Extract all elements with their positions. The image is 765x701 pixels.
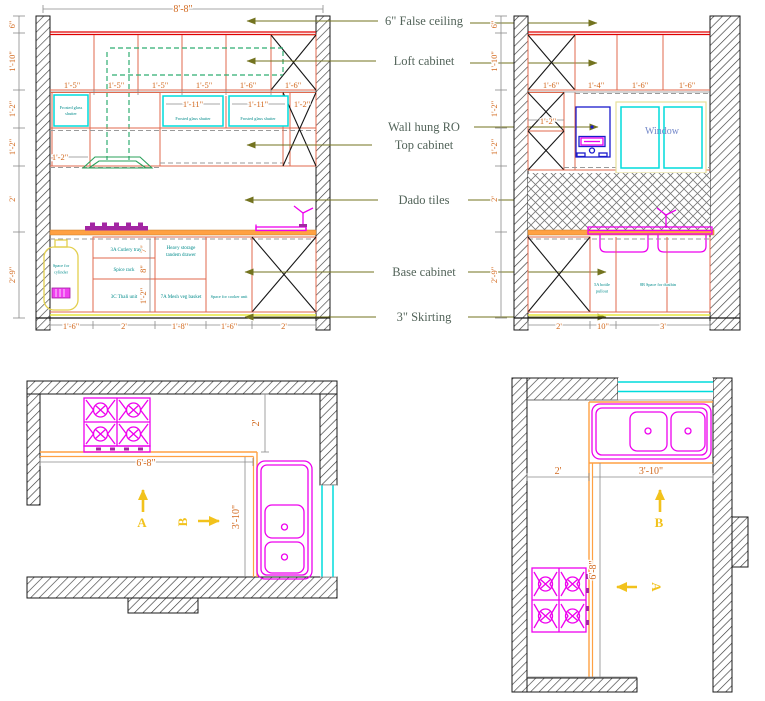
plan-a-dims: 6'-8" 3'-10" 2'	[40, 394, 269, 577]
plan-a-hob	[84, 398, 150, 452]
wall-hung-ro-label: Wall hung RO	[388, 120, 460, 134]
plan-a: 6'-8" 3'-10" 2' A B	[27, 381, 337, 613]
dim: 2'	[251, 419, 262, 426]
dim: 2'	[121, 321, 127, 331]
plan-a-bottom-wall	[27, 577, 337, 598]
dim: 2'	[7, 196, 17, 202]
unit-label: Space for cooker unit	[211, 294, 249, 299]
elev-a-base-cabinets: 7" 8" 1'-2" 3A Cutlery tray Spice rack 3…	[50, 237, 316, 315]
plan-b-bottom-wall	[527, 678, 637, 692]
shutter-label: shutter	[65, 111, 77, 116]
burner-icon	[561, 572, 584, 596]
elev-b-base-cabinets: 5A bottle pullout 8B Space for dustbin	[528, 237, 710, 315]
elev-a-width-dim: 8'-8"	[173, 4, 192, 15]
plan-b-top-wall	[527, 378, 618, 400]
elev-a-left-dims: 6" 1'-10" 1'-2" 1'-2" 2' 2'-9"	[7, 16, 25, 318]
plan-a-sink	[257, 461, 312, 579]
plan-b-sink	[592, 404, 711, 459]
dim: 1'-6"	[221, 321, 237, 331]
dim: 1'-6"	[679, 80, 695, 90]
unit-label: Spice rack	[114, 268, 135, 273]
plan-a-counter-edge	[40, 452, 257, 577]
dim: 8"	[138, 265, 148, 273]
elev-b-dado-tiles	[528, 173, 710, 230]
annotation-labels: 6" False ceiling Loft cabinet Wall hung …	[245, 14, 606, 324]
dim: 1'-6"	[63, 321, 79, 331]
burner-icon	[561, 604, 584, 628]
section-a-label: A	[137, 515, 147, 530]
elev-b-bottom-dims: 2' 10" 3'	[528, 321, 710, 331]
elev-a-loft-cabinets: 1'-5" 1'-5" 1'-5" 1'-5" 1'-6" 1'-6"	[50, 35, 316, 95]
unit-label: 8B Space for dustbin	[640, 282, 677, 287]
elev-a-right-wall	[316, 16, 330, 330]
shutter-label: Frosted glass shutter	[240, 116, 276, 121]
dim: 1'-6"	[285, 80, 301, 90]
elev-b-wall-hung-ro-unit	[576, 107, 610, 157]
dim: 2'	[555, 466, 562, 477]
dim: 6"	[489, 21, 499, 29]
plan-b-left-wall	[512, 378, 527, 692]
plan-a-bottom-wall-step	[128, 598, 198, 613]
plan-a-window	[320, 485, 337, 577]
dim: 1'-4"	[588, 80, 604, 90]
plan-b-right-wall	[713, 378, 732, 692]
elev-b-left-dims: 6" 1'-10" 1'-2" 1'-2" 2' 2'-9"	[489, 16, 507, 318]
dim: 2'	[556, 321, 562, 331]
unit-label: 3A Cutlery tray	[110, 248, 142, 253]
dim: 6'-8"	[588, 560, 599, 579]
dado-tiles-label: Dado tiles	[398, 193, 449, 207]
plan-a-top-wall	[27, 381, 337, 394]
elev-a-sink-and-faucet	[256, 206, 313, 231]
unit-label: pullout	[596, 289, 609, 294]
elevation-a: 8'-8" 6" 1'-10" 1'-2" 1'-2" 2' 2'-9"	[7, 4, 330, 331]
dim: 1'-11"	[183, 99, 203, 109]
skirting-label: 3" Skirting	[397, 310, 453, 324]
dim: 1'-11"	[248, 99, 268, 109]
dim: 2'	[489, 196, 499, 202]
shutter-label: Frosted glass	[60, 105, 83, 110]
elev-a-bottom-dims: 1'-6" 2' 1'-8" 1'-6" 2'	[50, 321, 316, 331]
unit-label: 3C Thali unit	[111, 295, 138, 300]
burner-icon	[86, 424, 115, 444]
dim: 1'-6"	[240, 80, 256, 90]
dim: 1'-2"	[489, 101, 499, 117]
dim: 3'-10"	[231, 505, 242, 529]
dim: 1'-5"	[108, 80, 124, 90]
elev-a-false-ceiling	[50, 32, 316, 35]
dim: 1'-2"	[7, 139, 17, 155]
kitchen-drawing: 8'-8" 6" 1'-10" 1'-2" 1'-2" 2' 2'-9"	[0, 0, 765, 701]
top-cabinet-label: Top cabinet	[395, 138, 454, 152]
cylinder-label: cylinder	[54, 270, 69, 275]
dim: 1'-10"	[489, 51, 499, 72]
unit-label: 7A Mesh veg basket	[161, 295, 202, 300]
burner-icon	[119, 424, 148, 444]
shutter-label: Frosted glass shutter	[175, 116, 211, 121]
section-b-label: B	[175, 517, 190, 526]
plan-b-window	[618, 378, 713, 400]
elev-b-window: Window	[616, 102, 706, 173]
dim: 1'-6"	[543, 80, 559, 90]
dim: 1'-2"	[540, 116, 556, 126]
dim: 1'-6"	[632, 80, 648, 90]
dim: 1'-5"	[196, 80, 212, 90]
dim: 1'-5"	[152, 80, 168, 90]
plan-a-left-wall	[27, 394, 40, 505]
elev-a-overall-dim: 8'-8"	[43, 4, 323, 15]
plan-b-counter-edge	[589, 402, 713, 677]
plan-a-right-wall	[320, 394, 337, 485]
dim: 1'-2"	[7, 101, 17, 117]
burner-icon	[86, 400, 115, 420]
window-label: Window	[645, 126, 680, 137]
unit-label: Heavy storage	[167, 246, 197, 251]
dim: 10"	[597, 321, 609, 331]
dim: 1'-2"	[138, 288, 148, 304]
base-cabinet-label: Base cabinet	[392, 265, 456, 279]
unit-label: 5A bottle	[594, 282, 610, 287]
plan-b-section-arrows: B A	[617, 490, 664, 592]
burner-icon	[119, 400, 148, 420]
elev-b-left-wall	[514, 16, 528, 330]
burner-icon	[534, 604, 557, 628]
section-a-label: A	[649, 582, 664, 592]
dim: 1'-8"	[172, 321, 188, 331]
dim: 6'-8"	[136, 458, 155, 469]
loft-cabinet-label: Loft cabinet	[394, 54, 455, 68]
faucet-icon	[294, 206, 313, 227]
cylinder-label: Space for	[53, 263, 70, 268]
elev-a-hob	[85, 223, 148, 231]
false-ceiling-label: 6" False ceiling	[385, 14, 464, 28]
dim: 1'-5"	[64, 80, 80, 90]
plan-b-dims: 2' 3'-10" 6'-8"	[527, 463, 713, 677]
dim: 1'-2"	[489, 139, 499, 155]
dim: 1'-10"	[7, 51, 17, 72]
burner-icon	[534, 572, 557, 596]
elev-b-right-wall	[710, 16, 740, 330]
unit-label: tandem drawer	[166, 253, 196, 258]
dim: 3'-10"	[639, 466, 663, 477]
plan-b: 2' 3'-10" 6'-8" B A	[512, 378, 748, 692]
elevation-b: 6" 1'-10" 1'-2" 1'-2" 2' 2'-9" 1'-6" 1'-…	[489, 16, 740, 331]
elev-a-left-wall	[36, 16, 50, 330]
dim: 1'-2"	[294, 99, 310, 109]
plan-b-hob	[532, 568, 589, 632]
dim: 1'-2"	[52, 152, 68, 162]
dim: 2'-9"	[489, 267, 499, 283]
dim: 2'	[281, 321, 287, 331]
section-b-label: B	[655, 515, 664, 530]
elev-a-top-cabinets: Frosted glass shutter 1'-11" Frosted gla…	[50, 93, 316, 168]
dim: 6"	[7, 21, 17, 29]
plan-b-right-wall-step	[732, 517, 748, 567]
dim: 3'	[660, 321, 666, 331]
plan-a-section-arrows: A B	[137, 490, 219, 530]
kitchen-drawing-canvas: 8'-8" 6" 1'-10" 1'-2" 1'-2" 2' 2'-9"	[0, 0, 765, 701]
elev-b-loft-cabinets: 1'-6" 1'-4" 1'-6" 1'-6"	[528, 35, 710, 94]
dim: 2'-9"	[7, 267, 17, 283]
